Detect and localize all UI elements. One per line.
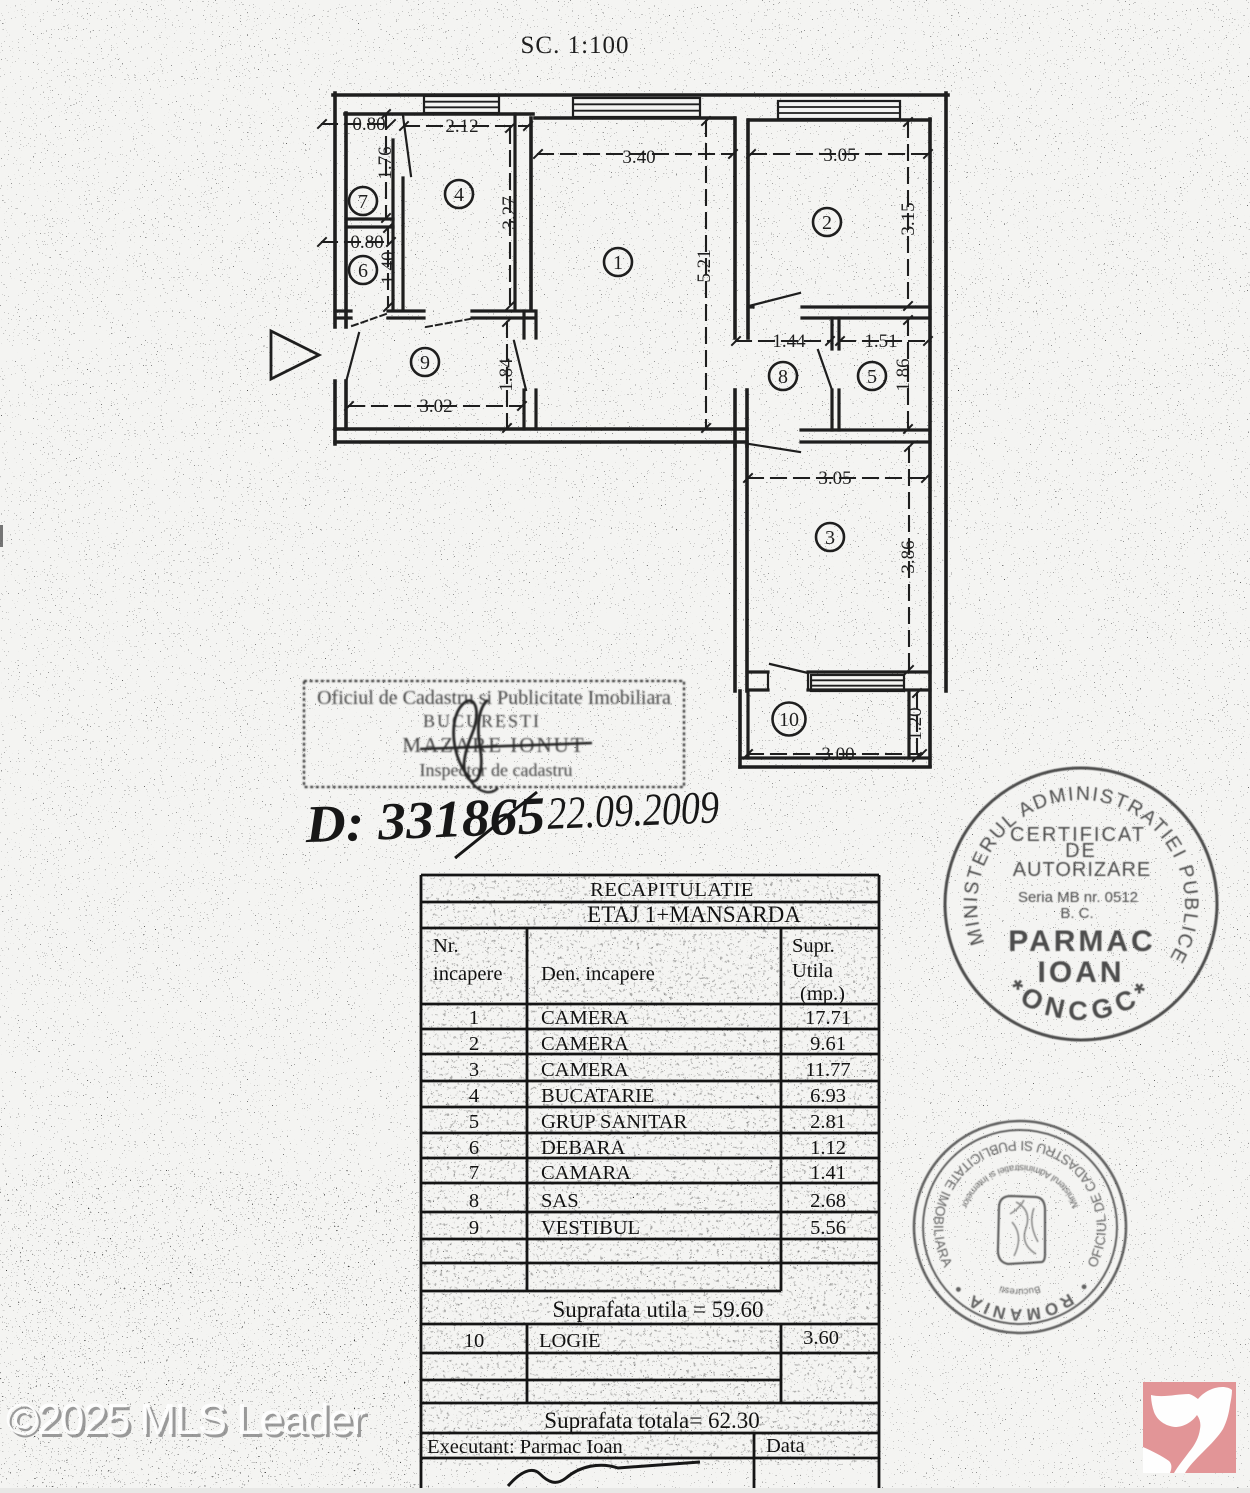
svg-text:6: 6 [469,1137,479,1159]
svg-text:VESTIBUL: VESTIBUL [541,1217,640,1239]
svg-text:1.44: 1.44 [772,331,806,352]
svg-text:3.60: 3.60 [803,1327,839,1349]
svg-text:7: 7 [358,191,368,213]
svg-text:8: 8 [469,1190,479,1212]
svg-text:SC. 1:100: SC. 1:100 [520,32,629,59]
svg-text:Inspector de cadastru: Inspector de cadastru [420,760,573,780]
svg-text:SAS: SAS [541,1190,579,1212]
svg-text:2.12: 2.12 [445,116,478,137]
svg-text:Suprafata totala= 62.30: Suprafata totala= 62.30 [544,1408,759,1433]
svg-text:9: 9 [420,352,430,374]
svg-text:3.86: 3.86 [898,540,919,573]
svg-text:Suprafata utila = 59.60: Suprafata utila = 59.60 [553,1297,764,1322]
svg-text:1: 1 [613,252,623,274]
svg-text:17.71: 17.71 [805,1007,851,1029]
svg-text:1.40: 1.40 [378,251,399,284]
svg-text:CAMERA: CAMERA [541,1033,629,1055]
svg-text:IOAN: IOAN [1038,956,1125,989]
svg-text:2: 2 [469,1033,479,1055]
svg-text:5: 5 [867,366,877,388]
svg-text:incapere: incapere [433,963,502,985]
svg-text:1.86: 1.86 [893,358,914,391]
svg-text:10: 10 [464,1330,485,1352]
svg-text:1.84: 1.84 [496,358,517,392]
svg-text:8: 8 [778,366,788,388]
svg-text:4: 4 [469,1085,479,1107]
svg-text:AUTORIZARE: AUTORIZARE [1013,859,1152,881]
svg-text:Den. incapere: Den. incapere [541,963,655,985]
svg-text:Data: Data [766,1435,805,1457]
svg-text:1.51: 1.51 [864,331,897,352]
svg-text:B. C.: B. C. [1060,905,1093,922]
svg-text:1.12: 1.12 [810,1137,846,1159]
svg-text:3.15: 3.15 [898,202,919,235]
svg-text:D: 331865: D: 331865 [303,787,546,854]
svg-text:RECAPITULATIE: RECAPITULATIE [590,879,754,901]
svg-text:CAMARA: CAMARA [541,1162,631,1184]
svg-text:1: 1 [469,1007,479,1029]
svg-text:2: 2 [822,212,832,234]
svg-text:CAMERA: CAMERA [541,1007,629,1029]
svg-text:1.76: 1.76 [375,146,396,179]
svg-text:Supr.: Supr. [792,935,835,957]
svg-text:5: 5 [469,1111,479,1133]
svg-text:CAMERA: CAMERA [541,1059,629,1081]
svg-text:0.80: 0.80 [350,232,383,253]
svg-text:LOGIE: LOGIE [539,1330,600,1352]
svg-text:(mp.): (mp.) [800,983,845,1005]
svg-text:9: 9 [469,1217,479,1239]
svg-text:22.09.2009: 22.09.2009 [546,781,720,839]
svg-text:6.93: 6.93 [810,1085,846,1107]
svg-text:10: 10 [779,709,799,731]
svg-text:6: 6 [358,260,368,282]
svg-text:2.81: 2.81 [810,1111,846,1133]
svg-text:3.00: 3.00 [821,744,854,765]
svg-text:©2025 MLS Leader: ©2025 MLS Leader [6,1395,365,1444]
svg-text:BUCURESTI: BUCURESTI [423,711,541,731]
svg-text:1.20: 1.20 [905,707,926,740]
svg-text:PARMAC: PARMAC [1008,925,1155,958]
svg-text:Seria MB nr. 0512: Seria MB nr. 0512 [1018,889,1138,906]
svg-text:Nr.: Nr. [433,935,459,957]
svg-text:3.05: 3.05 [818,468,851,489]
svg-text:3: 3 [825,527,835,549]
svg-text:2.68: 2.68 [810,1190,846,1212]
svg-text:9.61: 9.61 [810,1033,846,1055]
svg-text:3.27: 3.27 [499,196,520,229]
svg-text:11.77: 11.77 [805,1059,850,1081]
svg-text:Executant: Parmac Ioan: Executant: Parmac Ioan [427,1436,623,1458]
svg-text:5.21: 5.21 [694,249,715,282]
svg-text:4: 4 [454,184,464,206]
svg-text:0.80: 0.80 [352,114,385,135]
svg-text:BUCATARIE: BUCATARIE [541,1085,654,1107]
svg-text:1.41: 1.41 [810,1162,846,1184]
svg-text:DEBARA: DEBARA [541,1137,625,1159]
svg-text:7: 7 [469,1162,479,1184]
svg-text:3.02: 3.02 [419,396,452,417]
svg-text:GRUP SANITAR: GRUP SANITAR [541,1111,688,1133]
svg-text:3.05: 3.05 [823,145,856,166]
svg-text:3.40: 3.40 [622,147,655,168]
svg-text:ETAJ 1+MANSARDA: ETAJ 1+MANSARDA [587,902,801,927]
svg-text:Utila: Utila [792,960,833,982]
svg-text:5.56: 5.56 [810,1217,846,1239]
svg-text:3: 3 [469,1059,479,1081]
svg-text:Oficiul de Cadastru si Publici: Oficiul de Cadastru si Publicitate Imobi… [317,687,671,709]
